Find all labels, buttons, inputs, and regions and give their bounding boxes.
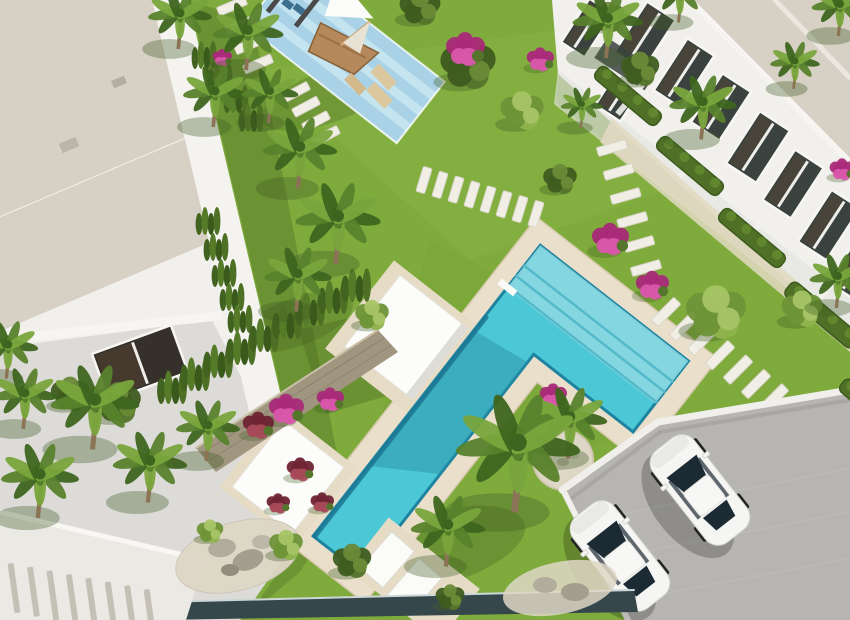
aerial-render-image bbox=[0, 0, 850, 620]
rock bbox=[561, 583, 589, 601]
render-root bbox=[0, 0, 850, 620]
rock bbox=[533, 577, 557, 593]
rock bbox=[252, 535, 272, 549]
rock bbox=[221, 564, 239, 576]
